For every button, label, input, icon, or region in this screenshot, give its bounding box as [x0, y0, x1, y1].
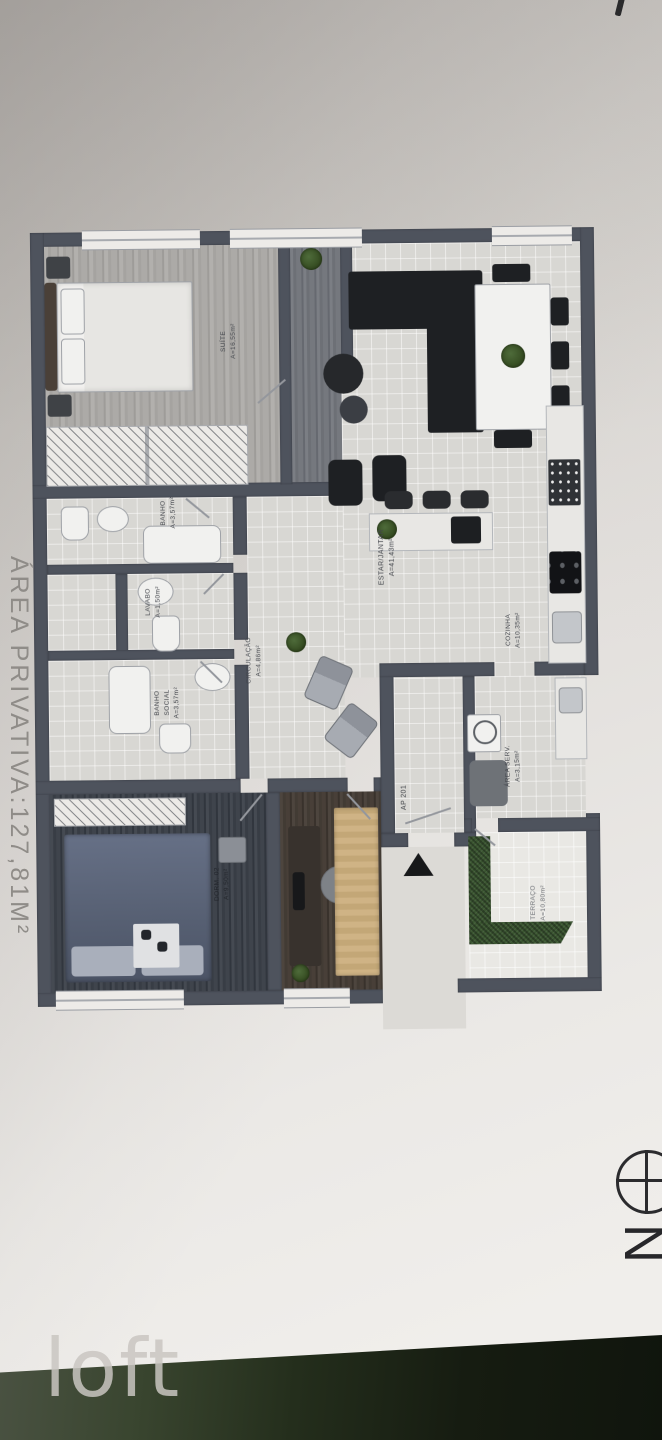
wall-entry-left	[379, 663, 395, 833]
window-suite	[82, 229, 200, 250]
coffee-table-1	[323, 353, 363, 393]
suite-pillow-1	[60, 288, 84, 334]
label-area-serv: ÁREA SERV.A=3,15m²	[503, 738, 523, 794]
bedroom2-throw	[133, 923, 179, 967]
label-banho: BANHOA=3,57m²	[159, 489, 179, 535]
suite-headboard	[44, 283, 57, 391]
wall-bedrooms-top-b	[268, 778, 348, 793]
floorplan-photo: SUÍTEA=16,55m² BANHOA=3,57m² LAVABOA=1,5…	[0, 0, 662, 1440]
bath-toilet	[61, 506, 89, 540]
stool-3	[461, 490, 489, 508]
suite-pillow-2	[61, 338, 85, 384]
floor-plan: SUÍTEA=16,55m² BANHOA=3,57m² LAVABOA=1,5…	[30, 221, 602, 1037]
compass-horizontal-line	[616, 1179, 662, 1182]
loft-watermark: loft	[44, 1322, 181, 1415]
suite-nightstand-1	[46, 257, 70, 279]
sofa-top	[348, 271, 433, 330]
bath-tub	[143, 525, 221, 564]
wall-suite-right	[278, 244, 293, 484]
hall-plant	[300, 248, 322, 270]
dining-chair-r2	[551, 341, 569, 369]
coffee-table-2	[340, 395, 368, 423]
wall-corridor-a	[233, 497, 248, 555]
bedroom2-cushion-1	[141, 930, 151, 940]
label-ap201: AP 201	[400, 777, 411, 817]
office-rug	[334, 807, 380, 975]
bedroom2-cushion-2	[157, 942, 167, 952]
label-dorm02: DORM. 02A=9,50m²	[212, 855, 232, 913]
label-banho-social: BANHOSOCIALA=3,57m²	[152, 671, 182, 733]
office-plant	[292, 964, 310, 982]
dining-chair-l1	[455, 298, 473, 326]
terrace-hedge-horizontal	[469, 921, 573, 944]
suite-nightstand-2	[48, 395, 72, 417]
kitchen-sink	[552, 611, 582, 643]
label-estar-jantar: ESTAR/JANTARA=41,43m²	[377, 515, 399, 599]
stool-1	[385, 491, 413, 509]
cooktop	[549, 551, 581, 593]
private-area-text: ÁREA PRIVATIVA:127,81M²	[4, 556, 33, 1096]
window-living-left	[230, 227, 362, 248]
label-terraco: TERRAÇOA=10,80m²	[529, 870, 549, 936]
label-circulacao: CIRCULAÇÃOA=4,86m²	[244, 625, 264, 697]
peninsula-appliance	[451, 516, 481, 543]
bedroom2-pillow-1	[71, 946, 135, 977]
wall-bath-divider1	[47, 563, 233, 575]
dining-chair-r1	[551, 297, 569, 325]
north-compass-icon	[616, 1150, 662, 1214]
label-cozinha: COZINHAA=10,35m²	[504, 598, 524, 662]
office-monitor	[293, 872, 305, 910]
dining-chair-l3	[455, 386, 473, 414]
wall-kitchen-service-a	[379, 662, 494, 677]
entry-arrow	[403, 853, 433, 876]
pen-tip-mark	[615, 0, 626, 16]
label-suite: SUÍTEA=16,55m²	[219, 299, 239, 383]
oven-stack	[548, 459, 580, 505]
wall-lavabo-left	[115, 574, 128, 656]
wall-entry-bottom-a	[381, 833, 408, 847]
washer-door	[473, 720, 497, 744]
service-appliance	[469, 760, 507, 806]
armchair-1	[328, 460, 362, 506]
dining-plant	[501, 344, 525, 368]
north-letter: N	[612, 1224, 662, 1263]
wall-bedroom-divider	[266, 792, 282, 990]
bedroom2-wardrobe	[54, 797, 186, 826]
wall-terrace-top-b	[498, 817, 600, 832]
wall-service-left	[463, 676, 477, 832]
service-sink	[559, 687, 583, 713]
circulation-plant	[286, 632, 306, 652]
bath2-tub	[108, 666, 151, 734]
wall-bath-divider2	[48, 649, 234, 661]
wall-bedrooms-top-a	[36, 779, 241, 795]
wall-right-terrace	[586, 813, 602, 991]
window-office	[284, 988, 350, 1009]
label-lavabo: LAVABOA=1,50m²	[143, 576, 163, 628]
dining-chair-bottom	[494, 430, 532, 448]
suite-wardrobe	[46, 425, 249, 487]
dining-chair-top	[492, 264, 530, 282]
compass-vertical-line	[645, 1150, 648, 1214]
wall-terrace-top-a	[464, 818, 472, 832]
dining-chair-l2	[455, 342, 473, 370]
window-bedroom2	[56, 989, 184, 1010]
window-living-right	[492, 225, 572, 246]
terrace-hedge-vertical	[468, 836, 491, 932]
stool-2	[423, 491, 451, 509]
wall-terrace-bottom	[458, 977, 602, 993]
